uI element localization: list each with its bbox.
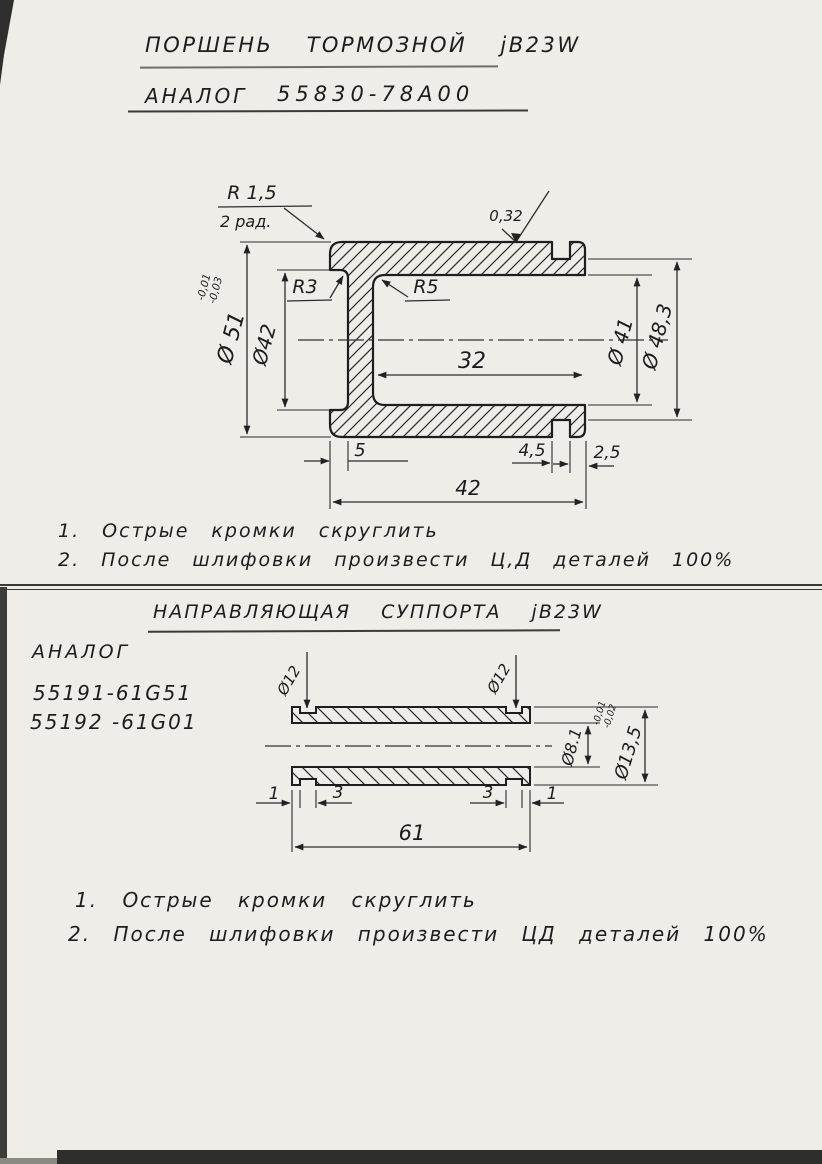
len1-right-label: 1 [547,784,558,804]
dia42-label: Ø42 [247,321,281,368]
piston-r5-label: R5 [413,276,438,298]
piston-radius-callout-sub: 2 рад. [220,212,271,231]
len42-label: 42 [455,476,480,500]
guide-top-wall [292,707,530,723]
piston-r3-label: R3 [292,276,317,298]
dia51-label: Ø 51 [212,309,250,367]
len61-label: 61 [399,821,426,845]
dia135-label: Ø13,5 [610,724,646,783]
dia483-label: Ø 48,3 [637,301,678,373]
scan-top-left-mark [0,0,14,85]
scan-left-band [0,587,7,1164]
dia41-label: Ø 41 [602,315,638,368]
guide-bottom-wall [292,767,530,785]
piston-radius-callout: R 1,5 [227,182,276,204]
dia81-label: Ø8.1 [557,726,585,769]
scan-bottom-band [57,1150,822,1164]
r3-underline [287,300,332,301]
drawing-canvas: R 1,5 2 рад. 0,32 R3 R5 Ø 51 -0,01 -0,03 [0,0,822,1164]
dia12-left-label: Ø12 [273,663,305,700]
piston-roughness-value: 0,32 [489,207,522,225]
len45-label: 4,5 [518,441,545,461]
len3-right-label: 3 [483,783,494,803]
len5-label: 5 [354,440,365,461]
len1-left-label: 1 [269,784,280,804]
radius-callout-leader [284,208,324,239]
scan-bottom-left-strip [0,1158,57,1164]
radius-callout-underline [218,206,312,207]
dia51-tolerance: -0,01 -0,03 [195,273,225,305]
r3-leader [330,276,343,298]
dia12-right-label: Ø12 [483,661,515,698]
len25-label: 2,5 [593,443,620,463]
len32-label: 32 [458,349,486,374]
scanned-drawing-page: ПОРШЕНЬ ТОРМОЗНОЙ jB23W АНАЛОГ 55830-78А… [0,0,822,1164]
r5-underline [405,300,450,301]
scan-artifacts [0,0,822,1164]
piston-drawing: R 1,5 2 рад. 0,32 R3 R5 Ø 51 -0,01 -0,03 [195,182,692,509]
len3-left-label: 3 [333,783,344,803]
r5-leader [382,280,408,297]
guide-drawing: Ø12 Ø12 Ø8.1 Ø13,5 -0,01 -0,02 [256,652,658,852]
dia135-tolerance: -0,01 -0,02 [591,700,619,730]
